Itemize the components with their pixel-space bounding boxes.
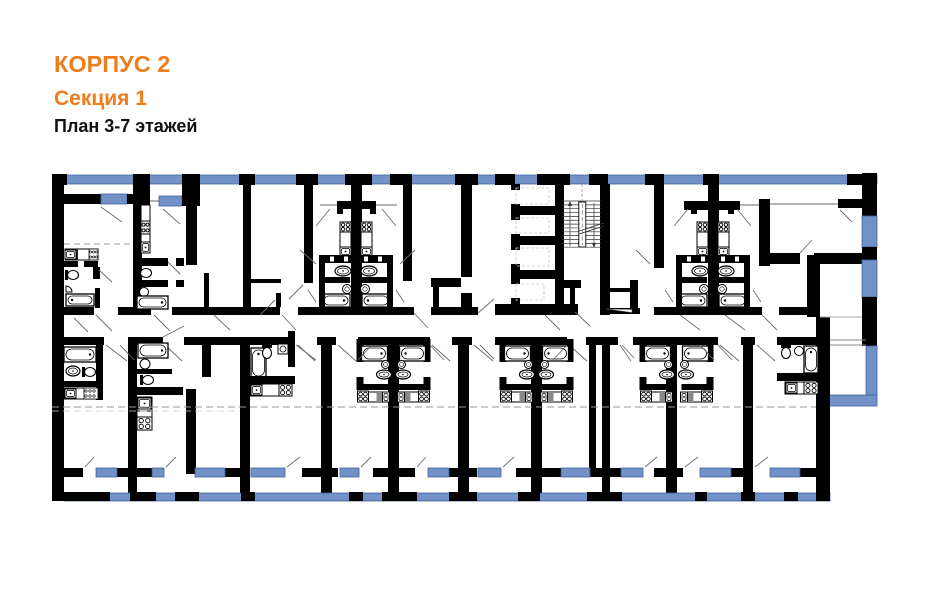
svg-text:КОРПУС 2: КОРПУС 2	[54, 51, 170, 77]
svg-text:Секция 1: Секция 1	[54, 87, 147, 110]
svg-text:План 3-7 этажей: План 3-7 этажей	[54, 116, 197, 136]
